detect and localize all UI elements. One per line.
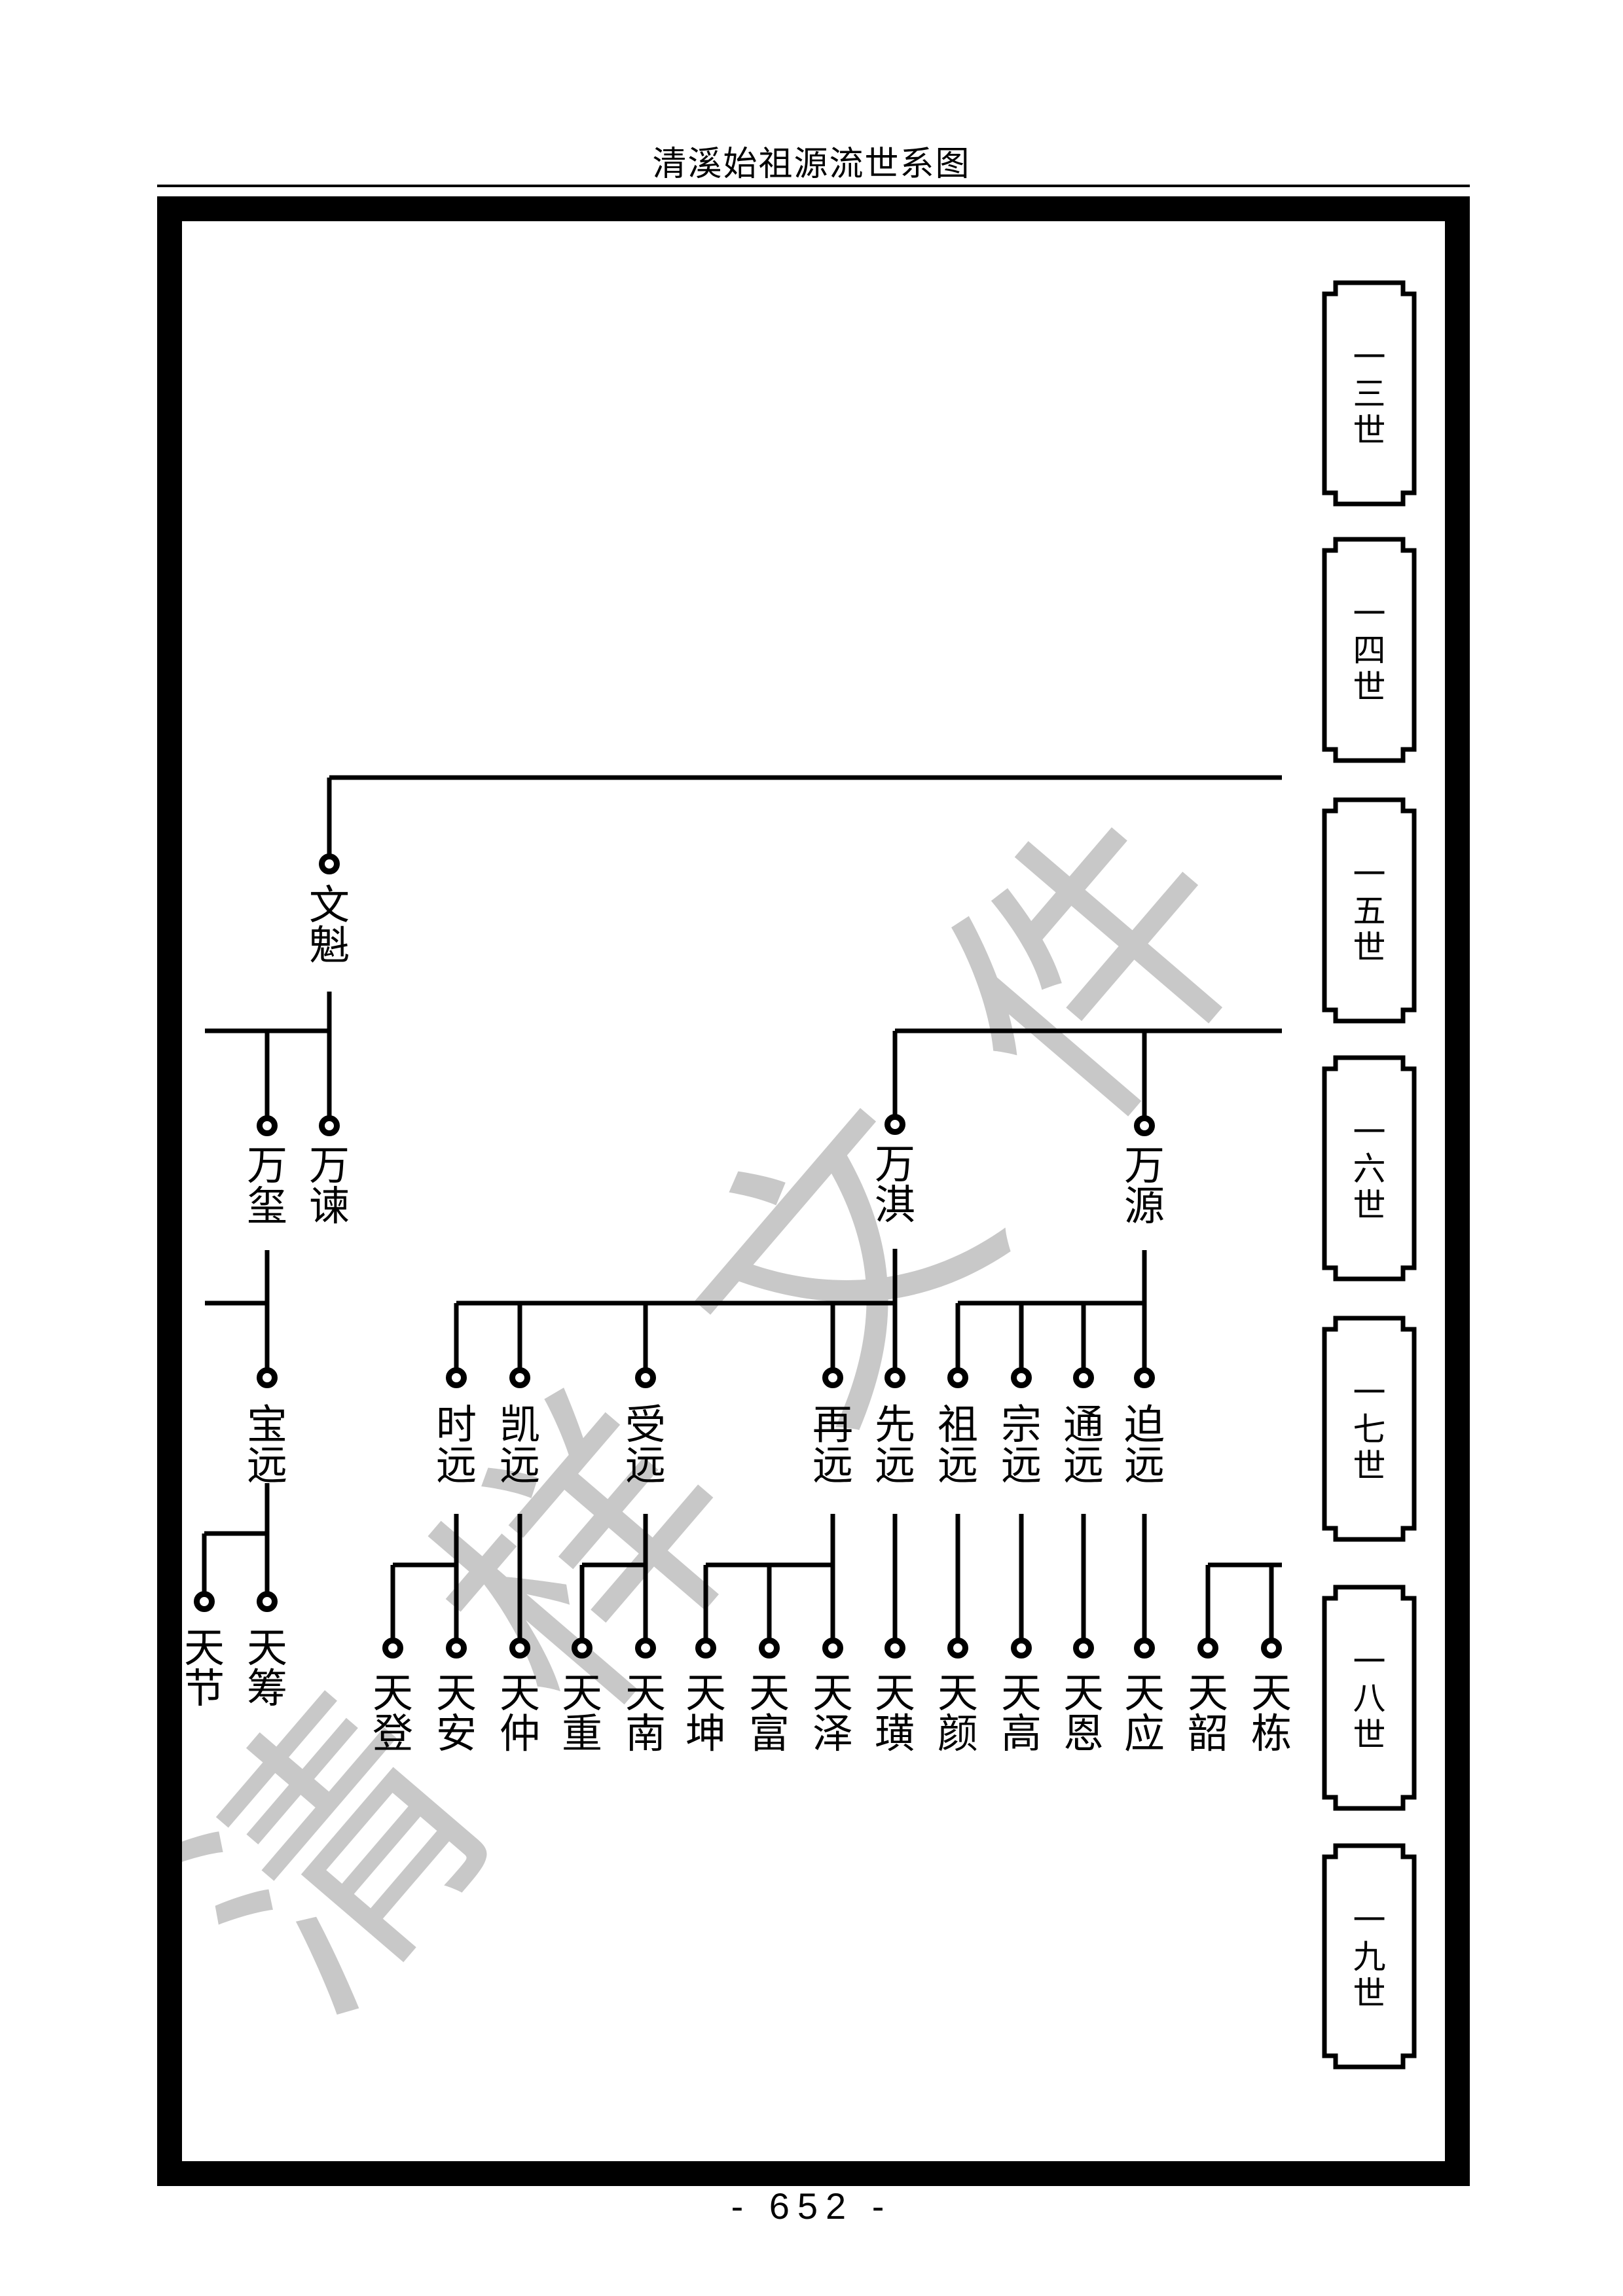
generation-label-column: 一三世一四世一五世一六世一七世一八世一九世: [1324, 283, 1414, 2067]
tree-node-xianyuan: 先远: [875, 1371, 915, 1489]
node-circle: [449, 1371, 464, 1386]
tree-node-kaiyuan: 凯远: [500, 1371, 540, 1489]
node-label: 祖远: [938, 1403, 978, 1488]
generation-box-16: 一六世: [1324, 1058, 1414, 1279]
node-label: 宗远: [1001, 1403, 1042, 1488]
node-circle: [575, 1641, 590, 1656]
node-label: 先远: [875, 1403, 915, 1488]
tree-node-wanjian: 万谏: [309, 1119, 350, 1230]
node-circle: [951, 1371, 966, 1386]
node-label: 通远: [1063, 1403, 1104, 1488]
node-label: 天登: [373, 1672, 413, 1757]
node-label: 天颜: [938, 1672, 978, 1757]
node-label: 天璜: [875, 1672, 915, 1757]
tree-node-tianjie: 天节: [184, 1594, 225, 1712]
tree-node-tongyuan: 通远: [1063, 1371, 1104, 1489]
node-circle: [513, 1641, 528, 1656]
node-circle: [638, 1371, 653, 1386]
tree-node-zongyuan: 宗远: [1001, 1371, 1042, 1489]
tree-nodes: 文魁万玺万谏万淇万源宝远时远凯远受远再远先远祖远宗远通远迫远天节天筹天登天安天仲…: [184, 857, 1292, 1757]
tree-node-zaiyuan: 再远: [812, 1371, 853, 1489]
node-label: 天韶: [1188, 1672, 1228, 1757]
node-circle: [699, 1641, 714, 1656]
tree-node-shouyuan: 受远: [625, 1371, 666, 1489]
node-circle: [1076, 1641, 1091, 1656]
tree-node-tiannan: 天南: [625, 1641, 666, 1757]
generation-box-17: 一七世: [1324, 1318, 1414, 1539]
node-circle: [322, 1119, 337, 1134]
tree-node-wenkui: 文魁: [309, 857, 350, 969]
node-label: 天重: [562, 1672, 602, 1757]
generation-box-label: 一五世: [1353, 856, 1386, 966]
node-label: 天恩: [1063, 1672, 1104, 1757]
connector-lines: [204, 778, 1282, 1639]
node-circle: [322, 857, 337, 872]
node-circle: [1137, 1371, 1152, 1386]
node-circle: [1201, 1641, 1216, 1656]
page-title: 清溪始祖源流世系图: [0, 136, 1623, 185]
generation-box-label: 一八世: [1353, 1643, 1386, 1753]
node-circle: [826, 1641, 841, 1656]
tree-node-tianchou: 天筹: [247, 1594, 287, 1712]
node-label: 宝远: [247, 1403, 287, 1488]
node-circle: [1014, 1641, 1029, 1656]
node-label: 天富: [749, 1672, 790, 1757]
tree-node-tianyan: 天颜: [938, 1641, 978, 1757]
chart-frame: [170, 209, 1457, 2174]
node-label: 万源: [1124, 1144, 1165, 1229]
generation-box-14: 一四世: [1324, 539, 1414, 761]
tree-node-tianze: 天泽: [812, 1641, 853, 1757]
node-label: 万谏: [309, 1144, 350, 1229]
generation-box-label: 一六世: [1353, 1114, 1386, 1224]
generation-box-label: 一九世: [1353, 1902, 1386, 2012]
node-label: 天安: [436, 1672, 477, 1757]
tree-node-tianan: 天安: [436, 1641, 477, 1757]
node-circle: [1264, 1641, 1279, 1656]
tree-node-tiandeng: 天登: [373, 1641, 413, 1757]
generation-box-label: 一三世: [1353, 339, 1386, 449]
node-label: 天栋: [1251, 1672, 1292, 1757]
node-circle: [1014, 1371, 1029, 1386]
node-label: 天应: [1124, 1672, 1165, 1757]
node-label: 天节: [184, 1626, 225, 1712]
generation-box-15: 一五世: [1324, 800, 1414, 1021]
tree-node-tiandong: 天栋: [1251, 1641, 1292, 1757]
node-label: 时远: [436, 1403, 477, 1488]
node-circle: [260, 1594, 275, 1609]
node-circle: [1137, 1119, 1152, 1134]
node-circle: [386, 1641, 401, 1656]
generation-box-19: 一九世: [1324, 1846, 1414, 2067]
tree-node-wanxi: 万玺: [247, 1119, 287, 1230]
generation-box-13: 一三世: [1324, 283, 1414, 504]
node-label: 万玺: [247, 1144, 287, 1229]
tree-node-zuyuan: 祖远: [938, 1371, 978, 1489]
node-label: 文魁: [309, 884, 350, 969]
tree-node-tiangao: 天高: [1001, 1641, 1042, 1757]
node-label: 天坤: [685, 1672, 726, 1757]
generation-box-label: 一七世: [1353, 1374, 1386, 1484]
tree-node-tiankun: 天坤: [685, 1641, 726, 1757]
node-label: 受远: [625, 1403, 666, 1488]
node-circle: [826, 1371, 841, 1386]
tree-node-tianzhong: 天仲: [500, 1641, 540, 1757]
node-circle: [888, 1117, 903, 1132]
node-label: 万淇: [875, 1143, 915, 1228]
tree-node-tianying: 天应: [1124, 1641, 1165, 1757]
page-number: - 652 -: [0, 2185, 1623, 2227]
tree-node-poyuan: 迫远: [1124, 1371, 1165, 1489]
node-circle: [260, 1119, 275, 1134]
tree-node-tianshao: 天韶: [1188, 1641, 1228, 1757]
tree-node-tianen: 天恩: [1063, 1641, 1104, 1757]
tree-node-tianhuang: 天璜: [875, 1641, 915, 1757]
tree-node-wanqi: 万淇: [875, 1117, 915, 1229]
node-circle: [951, 1641, 966, 1656]
generation-box-label: 一四世: [1353, 596, 1386, 706]
node-circle: [762, 1641, 777, 1656]
tree-node-baoyuan: 宝远: [247, 1371, 287, 1489]
node-label: 再远: [812, 1403, 853, 1488]
genealogy-chart: 文魁万玺万谏万淇万源宝远时远凯远受远再远先远祖远宗远通远迫远天节天筹天登天安天仲…: [0, 0, 1623, 2296]
node-label: 凯远: [500, 1403, 540, 1488]
node-label: 天泽: [812, 1672, 853, 1757]
node-circle: [513, 1371, 528, 1386]
tree-node-tianfu: 天富: [749, 1641, 790, 1757]
node-label: 天筹: [247, 1626, 287, 1712]
node-label: 天仲: [500, 1672, 540, 1757]
node-circle: [449, 1641, 464, 1656]
node-circle: [888, 1371, 903, 1386]
node-circle: [888, 1641, 903, 1656]
node-label: 迫远: [1124, 1403, 1165, 1488]
node-label: 天南: [625, 1672, 666, 1757]
node-circle: [638, 1641, 653, 1656]
tree-node-wanyuan: 万源: [1124, 1119, 1165, 1230]
node-circle: [260, 1371, 275, 1386]
tree-node-shiyuan: 时远: [436, 1371, 477, 1489]
node-circle: [1137, 1641, 1152, 1656]
node-circle: [1076, 1371, 1091, 1386]
generation-box-18: 一八世: [1324, 1587, 1414, 1808]
tree-node-tianchong: 天重: [562, 1641, 602, 1757]
node-label: 天高: [1001, 1672, 1042, 1757]
node-circle: [197, 1594, 212, 1609]
